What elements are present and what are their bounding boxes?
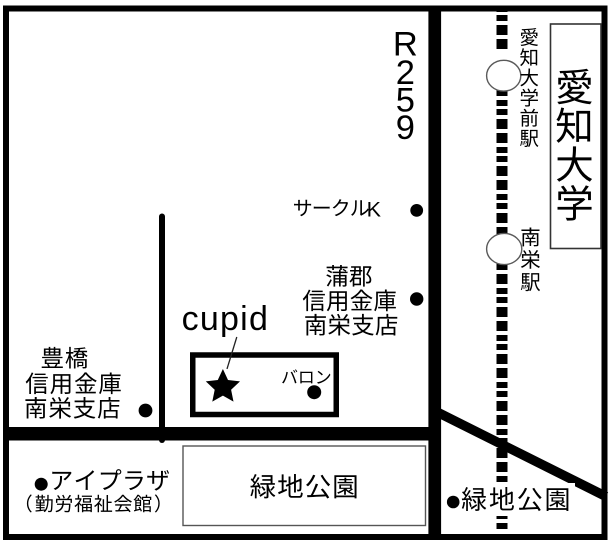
svg-text:K: K: [367, 197, 382, 221]
svg-text:cupid: cupid: [182, 300, 270, 338]
svg-text:9: 9: [396, 109, 415, 147]
